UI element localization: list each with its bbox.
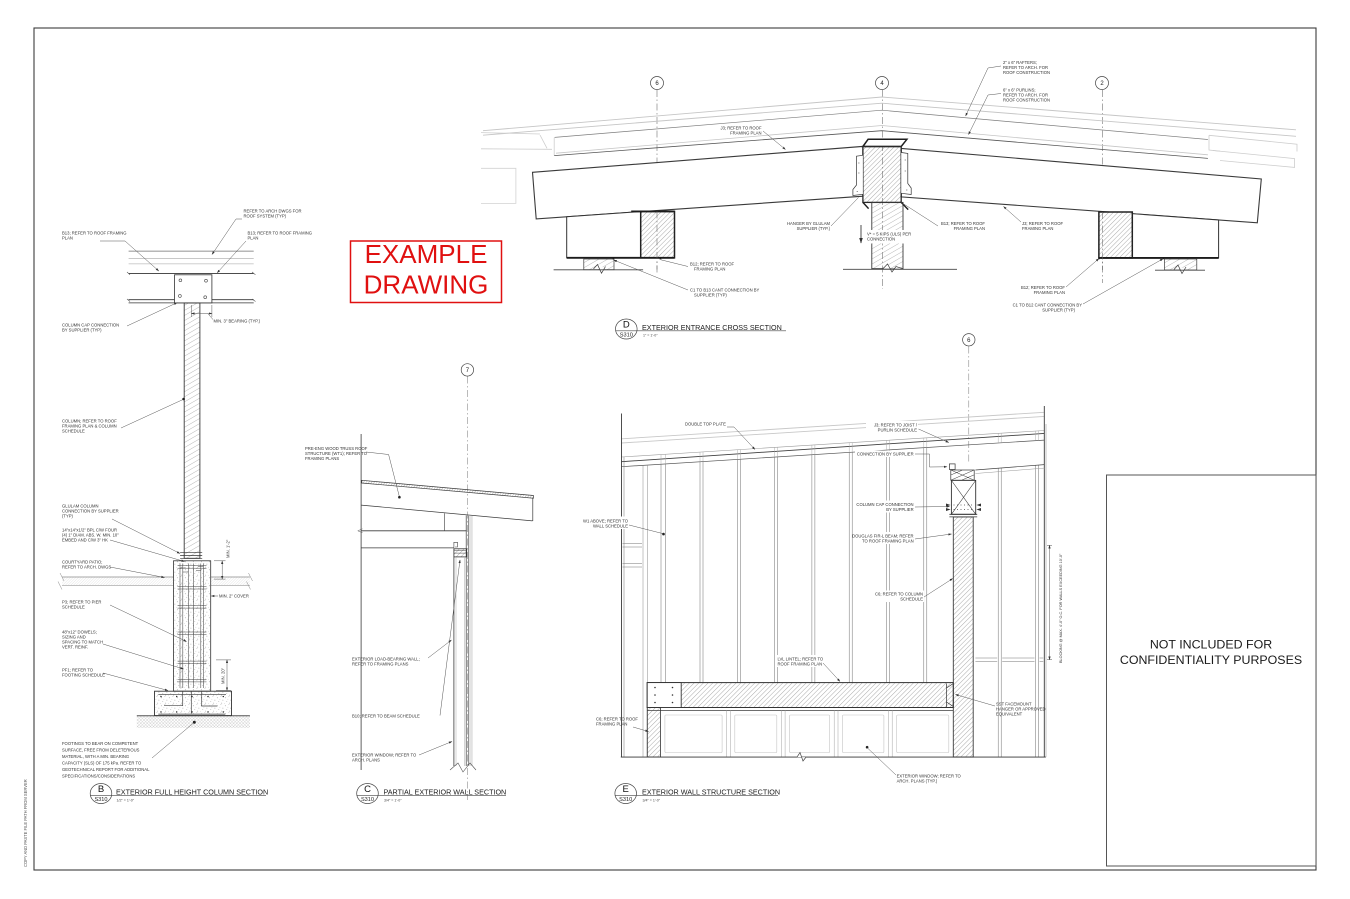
svg-text:PLAN: PLAN — [62, 236, 73, 241]
svg-text:ARCH. PLANS: ARCH. PLANS — [352, 758, 380, 763]
svg-text:MIN. 1'-2": MIN. 1'-2" — [226, 539, 231, 558]
svg-text:MIN. 20": MIN. 20" — [221, 667, 226, 684]
svg-text:S310: S310 — [94, 797, 107, 803]
svg-text:3/4" = 1'-0": 3/4" = 1'-0" — [643, 799, 661, 803]
svg-text:CONNECTION BY SUPPLIER: CONNECTION BY SUPPLIER — [857, 452, 914, 457]
svg-text:FOOTING SCHEDULE: FOOTING SCHEDULE — [62, 673, 105, 678]
svg-text:ROOF CONSTRUCTION: ROOF CONSTRUCTION — [1003, 70, 1050, 75]
svg-text:BY SUPPLIER: BY SUPPLIER — [886, 507, 913, 512]
svg-text:S310: S310 — [620, 333, 633, 339]
svg-text:SPECIFICATIONS/CONSIDERATIONS: SPECIFICATIONS/CONSIDERATIONS — [62, 774, 135, 779]
svg-text:REFER TO FRAMING PLANS: REFER TO FRAMING PLANS — [352, 662, 409, 667]
svg-text:TO ROOF FRAMING PLAN: TO ROOF FRAMING PLAN — [862, 539, 914, 544]
svg-text:FRAMING PLAN: FRAMING PLAN — [954, 226, 985, 231]
svg-text:PLAN: PLAN — [248, 236, 259, 241]
svg-text:ROOF CONSTRUCTION: ROOF CONSTRUCTION — [1003, 98, 1050, 103]
svg-text:ROOF FRAMING PLAN: ROOF FRAMING PLAN — [778, 662, 823, 667]
svg-text:FRAMING PLAN: FRAMING PLAN — [596, 722, 627, 727]
svg-text:CONNECTION: CONNECTION — [867, 237, 895, 242]
svg-text:1/2" = 1'-0": 1/2" = 1'-0" — [117, 799, 135, 803]
svg-text:MIN. 2" COVER: MIN. 2" COVER — [219, 594, 249, 599]
svg-text:MATERIAL, WITH A MIN. BEARING: MATERIAL, WITH A MIN. BEARING — [62, 754, 129, 759]
svg-text:FOOTINGS TO BEAR ON COMPETENT: FOOTINGS TO BEAR ON COMPETENT — [62, 741, 139, 746]
svg-text:B10; REFER TO BEAM SCHEDULE: B10; REFER TO BEAM SCHEDULE — [352, 714, 420, 719]
svg-text:S310: S310 — [619, 797, 632, 803]
svg-text:(TYP): (TYP) — [62, 514, 74, 519]
svg-text:BY SUPPLIER (TYP): BY SUPPLIER (TYP) — [62, 328, 102, 333]
svg-text:FRAMING PLAN: FRAMING PLAN — [694, 267, 725, 272]
svg-text:VERT. REINF.: VERT. REINF. — [62, 645, 88, 650]
svg-text:PURLIN SCHEDULE: PURLIN SCHEDULE — [878, 428, 918, 433]
svg-text:SURFACE, FREE FROM DELETERIOUS: SURFACE, FREE FROM DELETERIOUS — [62, 748, 140, 753]
svg-text:GEOTECHNICAL REPORT FOR ADDITI: GEOTECHNICAL REPORT FOR ADDITIONAL — [62, 767, 150, 772]
svg-text:D: D — [623, 320, 630, 331]
svg-text:WALL SCHEDULE: WALL SCHEDULE — [593, 524, 628, 529]
svg-text:MIN. 3" BEARING (TYP.): MIN. 3" BEARING (TYP.) — [214, 319, 261, 324]
svg-text:BLOCKING @ MAX. 4'-0" O.C. FOR: BLOCKING @ MAX. 4'-0" O.C. FOR WALLS EXC… — [1059, 553, 1063, 663]
svg-text:DRAWING: DRAWING — [364, 270, 489, 300]
svg-text:ARCH. PLANS (TYP.): ARCH. PLANS (TYP.) — [897, 779, 938, 784]
svg-text:SUPPLIER (TYP.): SUPPLIER (TYP.) — [797, 226, 831, 231]
svg-text:SUPPLIER (TYP): SUPPLIER (TYP) — [1042, 308, 1075, 313]
svg-text:COPY AND PASTE FILE PATH FROM: COPY AND PASTE FILE PATH FROM SERVER — [23, 779, 28, 867]
svg-text:SCHEDULE: SCHEDULE — [900, 597, 923, 602]
svg-text:1" = 1'-0": 1" = 1'-0" — [643, 334, 658, 338]
svg-text:FRAMING PLAN: FRAMING PLAN — [1034, 290, 1065, 295]
svg-text:EXAMPLE: EXAMPLE — [365, 239, 488, 269]
svg-text:NOT INCLUDED FOR: NOT INCLUDED FOR — [1150, 638, 1272, 652]
svg-text:SUPPLIER (TYP): SUPPLIER (TYP) — [694, 293, 727, 298]
svg-text:E: E — [623, 784, 629, 795]
svg-text:REFER TO ARCH. DWGS: REFER TO ARCH. DWGS — [62, 565, 111, 570]
svg-text:FRAMING PLAN: FRAMING PLAN — [1022, 226, 1053, 231]
svg-text:S310: S310 — [361, 797, 374, 803]
svg-text:CAPACITY (SLS) OF 175 kPa. REF: CAPACITY (SLS) OF 175 kPa. REFER TO — [62, 761, 142, 766]
svg-text:C: C — [364, 784, 371, 795]
svg-text:FRAMING PLAN: FRAMING PLAN — [730, 131, 761, 136]
svg-text:CONFIDENTIALITY PURPOSES: CONFIDENTIALITY PURPOSES — [1120, 653, 1302, 667]
svg-text:3/4" = 1'-0": 3/4" = 1'-0" — [384, 799, 402, 803]
svg-text:SCHEDULE: SCHEDULE — [62, 605, 85, 610]
svg-text:EMBED AND C/W 3" HK: EMBED AND C/W 3" HK — [62, 538, 108, 543]
svg-text:FRAMING PLANS: FRAMING PLANS — [305, 456, 339, 461]
svg-text:B: B — [98, 784, 104, 795]
svg-text:DOUBLE TOP PLATE: DOUBLE TOP PLATE — [685, 422, 726, 427]
svg-text:EQUIVALENT: EQUIVALENT — [996, 712, 1023, 717]
svg-text:ROOF SYSTEM (TYP): ROOF SYSTEM (TYP) — [244, 214, 287, 219]
svg-text:SCHEDULE: SCHEDULE — [62, 429, 85, 434]
